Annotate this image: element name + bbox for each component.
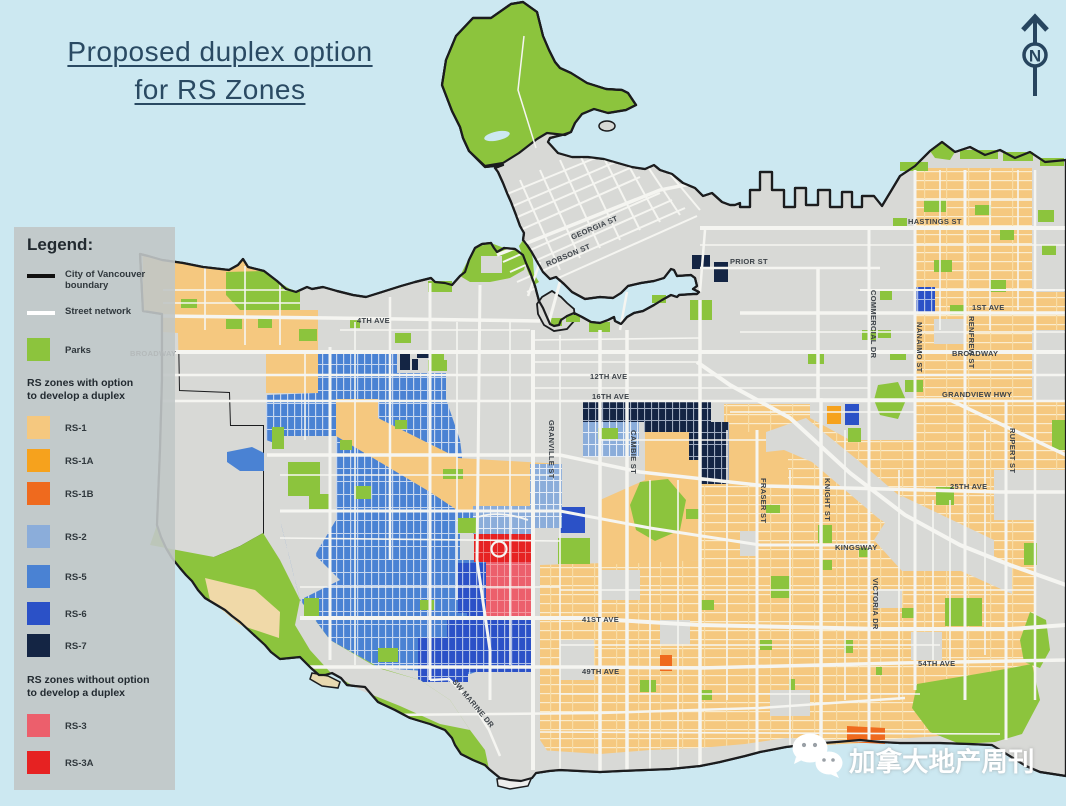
- svg-text:GRANVILLE ST: GRANVILLE ST: [547, 420, 556, 479]
- svg-text:CAMBIE ST: CAMBIE ST: [629, 430, 638, 474]
- svg-text:NANAIMO ST: NANAIMO ST: [915, 322, 924, 373]
- svg-text:16TH AVE: 16TH AVE: [592, 392, 629, 401]
- svg-text:HASTINGS ST: HASTINGS ST: [908, 217, 962, 226]
- svg-text:49TH AVE: 49TH AVE: [582, 667, 619, 676]
- svg-text:KINGSWAY: KINGSWAY: [835, 543, 878, 552]
- svg-text:GRANDVIEW HWY: GRANDVIEW HWY: [942, 390, 1012, 399]
- svg-text:12TH AVE: 12TH AVE: [590, 372, 627, 381]
- svg-text:RENFREW ST: RENFREW ST: [967, 316, 976, 369]
- svg-text:FRASER ST: FRASER ST: [759, 478, 768, 523]
- svg-text:VICTORIA DR: VICTORIA DR: [871, 578, 880, 630]
- svg-text:41ST AVE: 41ST AVE: [582, 615, 619, 624]
- svg-text:PRIOR ST: PRIOR ST: [730, 257, 768, 266]
- svg-text:N: N: [1029, 47, 1041, 66]
- svg-text:RUPERT ST: RUPERT ST: [1008, 428, 1017, 473]
- svg-text:4TH AVE: 4TH AVE: [357, 316, 390, 325]
- svg-text:1ST AVE: 1ST AVE: [972, 303, 1005, 312]
- svg-text:COMMERCIAL DR: COMMERCIAL DR: [869, 290, 878, 359]
- svg-text:KNIGHT ST: KNIGHT ST: [823, 478, 832, 521]
- svg-text:25TH AVE: 25TH AVE: [950, 482, 987, 491]
- svg-text:54TH AVE: 54TH AVE: [918, 659, 955, 668]
